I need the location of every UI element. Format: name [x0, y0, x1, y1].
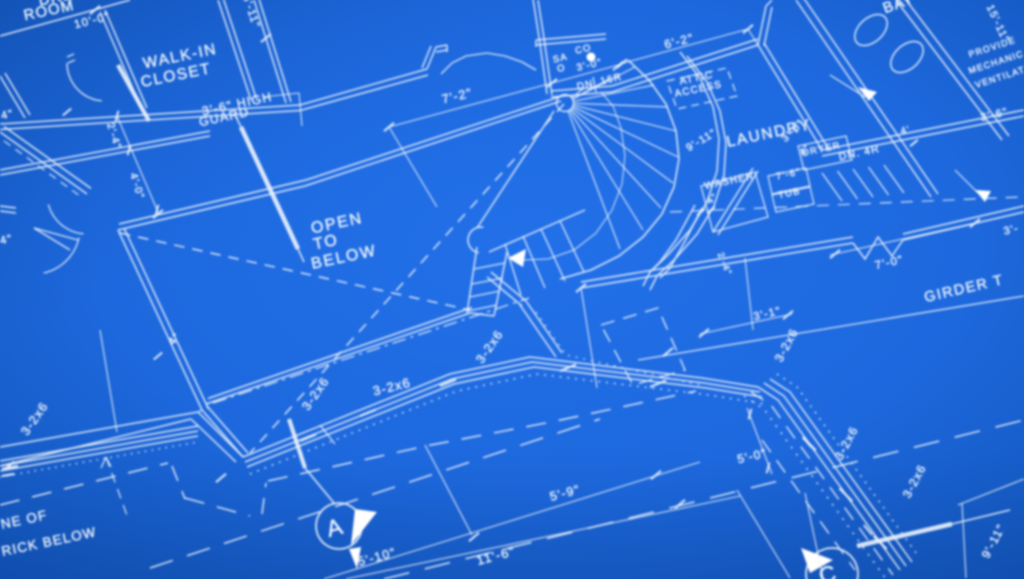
svg-text:4": 4" — [0, 108, 15, 122]
